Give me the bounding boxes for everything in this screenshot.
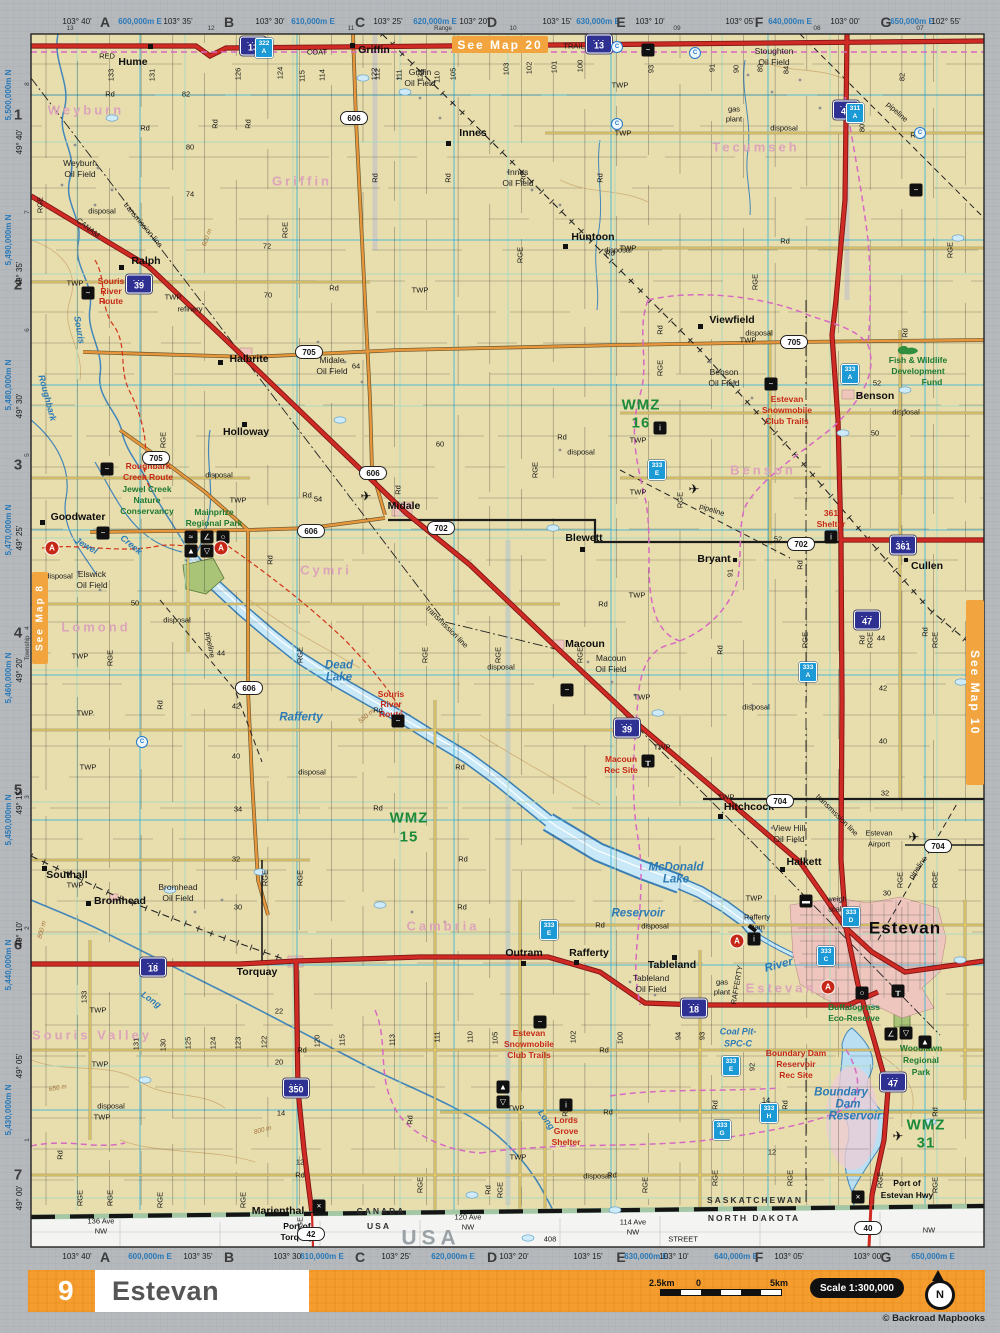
see-map-10-tab[interactable]: See Map 10: [966, 600, 984, 785]
see-map-20-tab[interactable]: See Map 20: [452, 36, 548, 53]
map-canvas: [0, 0, 1000, 1333]
see-map-8-tab[interactable]: See Map 8: [32, 572, 48, 664]
backroad-mapbook-page[interactable]: HumeGriffinInnesHuntoonRalphHalbriteHoll…: [0, 0, 1000, 1333]
